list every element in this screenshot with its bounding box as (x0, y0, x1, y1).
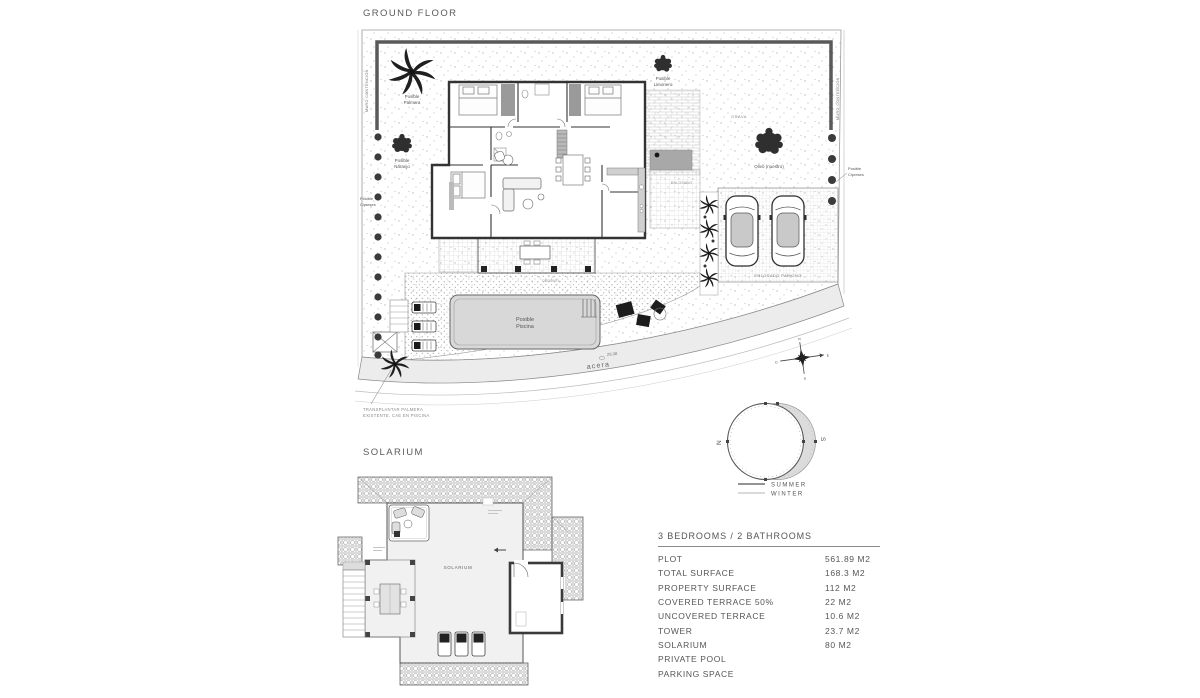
desnivel-label: DESNIVEL (542, 279, 559, 283)
transplant-note-2: EXISTENTE. CAE EN PISCINA (363, 413, 430, 418)
naranjo-label-2: Naranjo (394, 164, 410, 169)
compass-o: O (775, 360, 779, 364)
sun-south-label: S (819, 437, 826, 442)
side-terrace (650, 170, 700, 228)
sun-path-diagram: N S SUMMER WINTER (715, 392, 865, 504)
palmera-label-2: Palmera (404, 100, 421, 105)
pool-label-1: Posible (516, 317, 534, 323)
sun-legend: SUMMER WINTER (738, 483, 807, 498)
legend-winter: WINTER (771, 492, 804, 498)
chillout-seating (389, 505, 429, 541)
naranjo-label-1: Posible (395, 158, 410, 163)
solarium-plan: SOLARIUM (328, 462, 620, 694)
cipreses-right-1: Posible (848, 166, 862, 171)
legend-summer: SUMMER (771, 483, 807, 489)
spec-label: PROPERTY SURFACE (658, 583, 825, 593)
table-row: PARKING SPACE (658, 666, 880, 680)
sidewalk-label: acera (586, 361, 610, 371)
bed-2 (585, 85, 621, 115)
solarium-title: SOLARIUM (363, 447, 424, 458)
limonero-label-2: Limonero (654, 82, 673, 87)
spec-label: PRIVATE POOL (658, 654, 825, 664)
front-path (439, 238, 478, 272)
staircase (343, 562, 365, 637)
grava-label: GRAVA (731, 114, 747, 119)
wardrobe (501, 84, 515, 116)
enlosado-label: ENLOSADO (671, 181, 692, 185)
table-row: PRIVATE POOL (658, 652, 880, 666)
spec-value: 23.7 M2 (825, 626, 880, 636)
spec-value: 10.6 M2 (825, 611, 880, 621)
spec-value: 80 M2 (825, 640, 880, 650)
bed-1 (459, 85, 497, 115)
parking: ENLOSADO PARKING (718, 188, 838, 282)
spec-value: 168.3 M2 (825, 568, 880, 578)
compass-e: E (826, 353, 830, 357)
stairs (557, 130, 567, 158)
spec-value: 22 M2 (825, 597, 880, 607)
parking-label: ENLOSADO PARKING (754, 273, 801, 278)
table-row: UNCOVERED TERRACE 10.6 M2 (658, 609, 880, 623)
spec-value: 112 M2 (825, 583, 880, 593)
spec-table-header: 3 BEDROOMS / 2 BATHROOMS (658, 531, 880, 547)
spec-value: 561.89 M2 (825, 554, 880, 564)
house (432, 82, 645, 238)
table-row: PLOT 561.89 M2 (658, 552, 880, 566)
muro-label-left: MURO CONTENCIÓN (364, 69, 369, 112)
spec-label: TOTAL SURFACE (658, 568, 825, 578)
ground-floor-plan: acera 29.38 Posible Piscina (355, 22, 875, 425)
table-row: SOLARIUM 80 M2 (658, 638, 880, 652)
palmera-label-1: Posible (405, 94, 420, 99)
muro-label-right: MURO CONTENCIÓN (835, 77, 840, 120)
table-row: PROPERTY SURFACE 112 M2 (658, 581, 880, 595)
pool: Posible Piscina (450, 295, 600, 349)
summer-sun-circle (728, 404, 804, 480)
spec-label: UNCOVERED TERRACE (658, 611, 825, 621)
spec-label: TOWER (658, 626, 825, 636)
transplant-note-1: TRANSPLANTAR PALMERA (363, 407, 423, 412)
floor-plan-sheet: GROUND FLOOR (0, 0, 1200, 698)
olivo-label: Olivo (nuestro) (754, 164, 784, 169)
tower (510, 560, 565, 633)
pool-label-2: Piscina (516, 324, 535, 330)
spec-label: COVERED TERRACE 50% (658, 597, 825, 607)
bed-3 (451, 172, 485, 198)
palm-strip (699, 192, 719, 295)
spec-label: SOLARIUM (658, 640, 825, 650)
terrace-table (520, 246, 550, 259)
cipreses-left-2: Cipreses (360, 202, 376, 207)
cipreses-right-2: Cipreses (848, 172, 864, 177)
table-row: TOTAL SURFACE 168.3 M2 (658, 566, 880, 580)
solarium-loungers (438, 632, 485, 656)
spec-label: PARKING SPACE (658, 669, 825, 679)
sun-north-label: N (716, 440, 723, 445)
table-row: TOWER 23.7 M2 (658, 623, 880, 637)
wardrobe (569, 84, 581, 116)
ground-floor-title: GROUND FLOOR (363, 8, 457, 19)
compass-n: N (798, 337, 802, 341)
solarium-room-label: SOLARIUM (444, 565, 473, 570)
compass-s: S (803, 377, 807, 381)
spec-label: PLOT (658, 554, 825, 564)
limonero-label-1: Posible (656, 76, 671, 81)
table-row: COVERED TERRACE 50% 22 M2 (658, 595, 880, 609)
spec-table: 3 BEDROOMS / 2 BATHROOMS PLOT 561.89 M2 … (658, 531, 880, 681)
cipreses-left-1: Posible (360, 196, 374, 201)
covered-terrace (478, 238, 595, 273)
dining-set (556, 155, 590, 185)
